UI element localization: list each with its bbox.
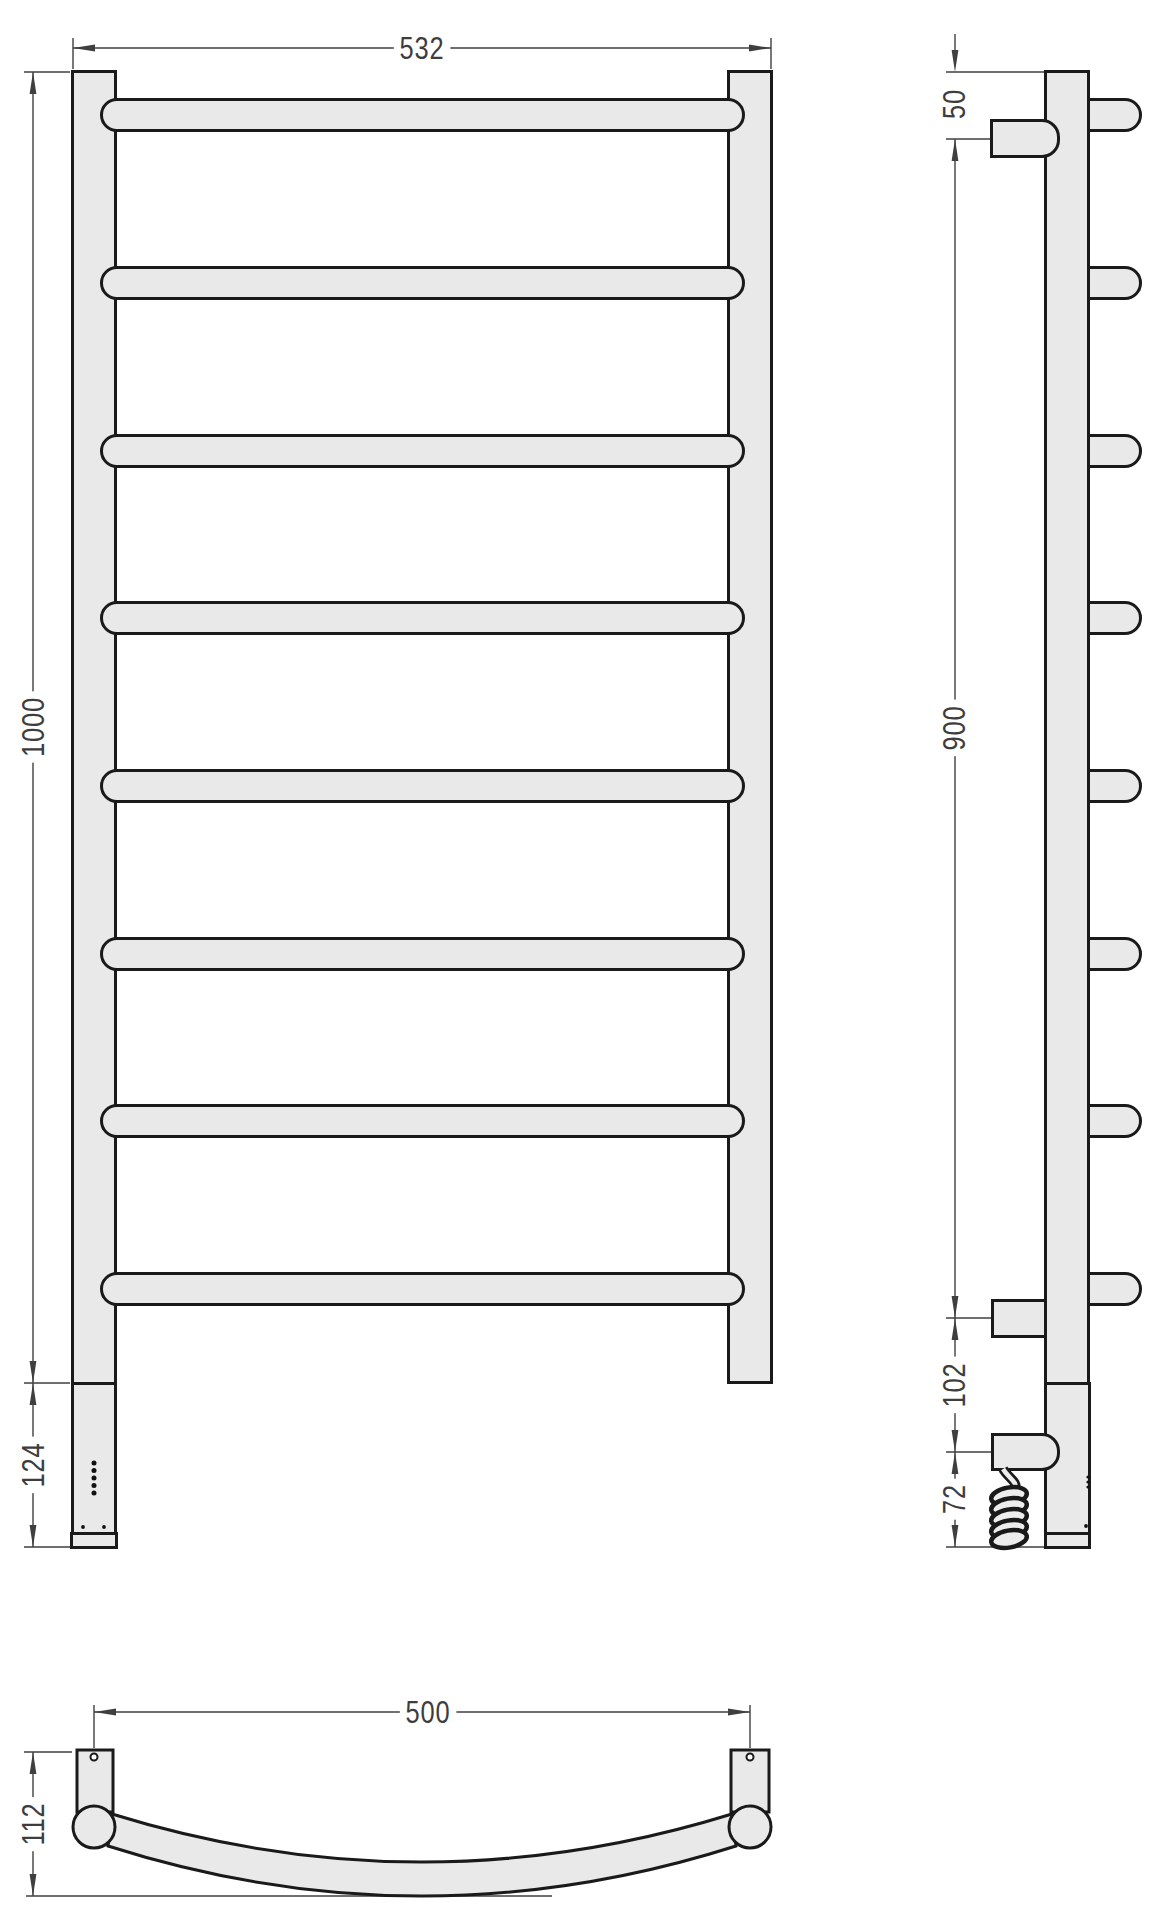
front-rung-7 — [100, 1104, 745, 1138]
technical-drawing-canvas: 532 1000 124 50 900 102 72 500 112 — [0, 0, 1161, 1920]
dim-label-control-124: 124 — [33, 1465, 102, 1500]
front-rung-1 — [100, 98, 745, 132]
front-rung-5 — [100, 769, 745, 803]
front-rung-6 — [100, 937, 745, 971]
dim-label-cable-72: 72 — [954, 1499, 1004, 1534]
side-heating-element — [991, 1433, 1060, 1471]
dim-label-rail-span-500: 500 — [428, 1712, 497, 1747]
dim-label-bracket-span-900: 900 — [954, 728, 1023, 763]
dim-label-top-offset-50: 50 — [954, 104, 1004, 139]
front-control-box — [71, 1382, 117, 1535]
side-control-box-bottom-cap — [1044, 1532, 1091, 1549]
front-rung-8 — [100, 1272, 745, 1306]
front-control-box-bottom-cap — [70, 1532, 118, 1549]
side-lower-wall-bracket — [991, 1299, 1049, 1338]
side-post — [1044, 70, 1090, 1385]
front-rung-4 — [100, 601, 745, 635]
dim-label-element-offset-102: 102 — [954, 1385, 1023, 1420]
dim-label-height-1000: 1000 — [33, 727, 120, 762]
front-rung-2 — [100, 266, 745, 300]
front-rung-3 — [100, 434, 745, 468]
dim-label-depth-112: 112 — [33, 1824, 99, 1859]
dim-label-width-532: 532 — [422, 48, 491, 83]
